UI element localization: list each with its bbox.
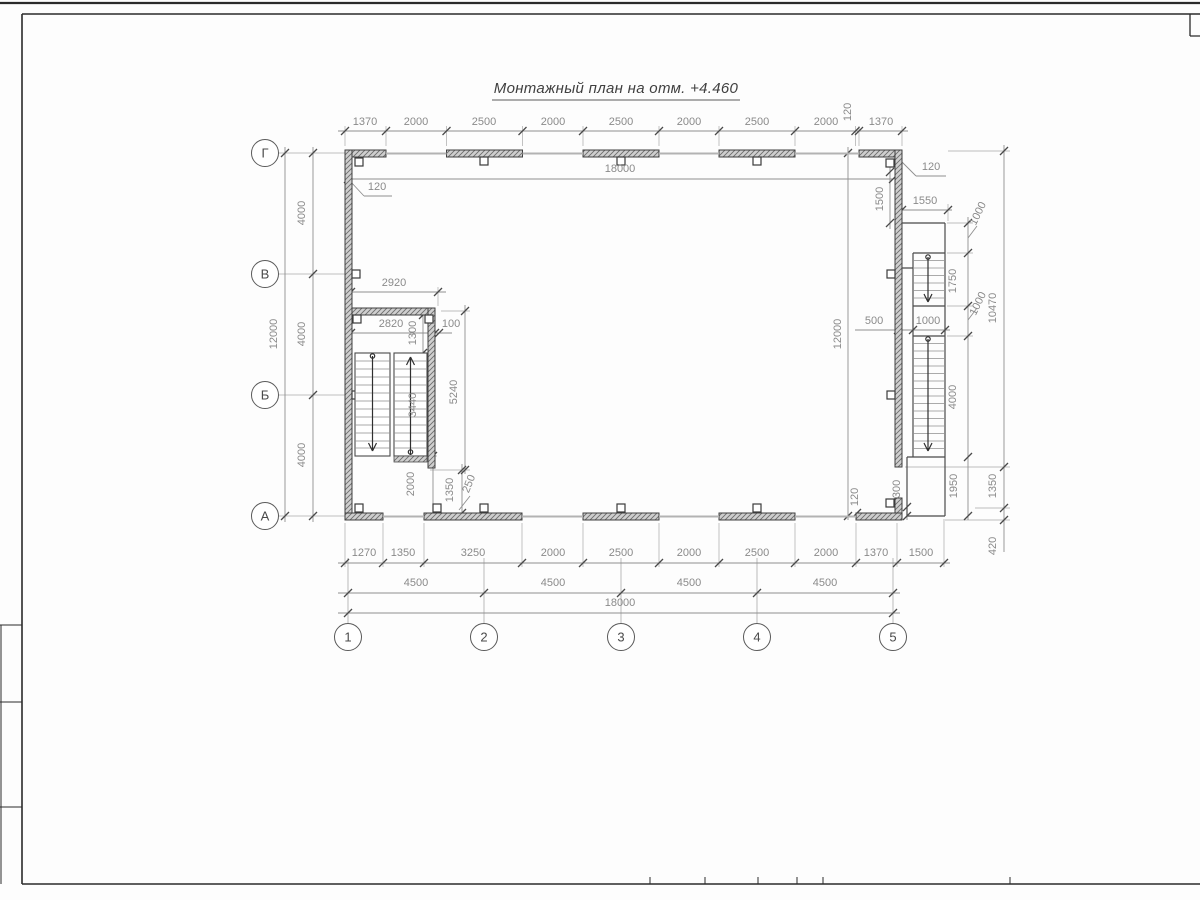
dimension-label: 4500 (404, 577, 428, 589)
dimension-label: 250 (460, 473, 478, 495)
dimension-label: 12000 (268, 319, 280, 350)
window-lines (383, 154, 859, 517)
dimension-label: 120 (368, 181, 386, 193)
axis-label: 2 (480, 630, 487, 645)
dimension-label: 4000 (947, 385, 959, 409)
dimension-label: 5240 (448, 380, 460, 404)
axis-label: А (261, 509, 270, 524)
dimension-label: 1270 (352, 547, 376, 559)
dimension-label: 10470 (987, 293, 999, 324)
dimension-label: 3250 (461, 547, 485, 559)
dimension-label: 2000 (541, 116, 565, 128)
dimension-label: 1350 (391, 547, 415, 559)
sheet-frame (0, 3, 1200, 884)
dimension-label: 4000 (296, 443, 308, 467)
axis-bubble: А (252, 503, 279, 530)
dimension-label: 2500 (609, 116, 633, 128)
dimension-label: 1370 (869, 116, 893, 128)
axis-label: 3 (617, 630, 624, 645)
floor-plan-canvas: Монтажный план на отм. +4.460 (0, 0, 1200, 900)
axis-bubble: Г (252, 140, 279, 167)
dimension-label: 500 (865, 315, 883, 327)
dimension-label: 1300 (407, 321, 419, 345)
dimension-label: 120 (842, 103, 854, 121)
dimension-label: 18000 (605, 163, 636, 175)
dimension-label: 2000 (677, 547, 701, 559)
dimension-label: 2000 (677, 116, 701, 128)
dimension-label: 1950 (948, 474, 960, 498)
dimension-label: 1350 (444, 478, 456, 502)
dimension-label: 1000 (968, 290, 990, 317)
axis-label: 1 (344, 630, 351, 645)
dimension-label: 12000 (832, 319, 844, 350)
dimension-label: 1370 (864, 547, 888, 559)
dimension-label: 300 (891, 480, 903, 498)
dimension-label: 1350 (987, 474, 999, 498)
dimension-label: 1370 (353, 116, 377, 128)
walls (345, 150, 902, 520)
dimension-label: 2500 (472, 116, 496, 128)
dimension-label: 2500 (745, 116, 769, 128)
drawing-title: Монтажный план на отм. +4.460 (494, 80, 739, 97)
dimension-label: 2000 (541, 547, 565, 559)
dimension-label: 1550 (913, 195, 937, 207)
axis-bubble: Б (252, 382, 279, 409)
dimension-label: 2000 (814, 116, 838, 128)
dimension-label: 2000 (404, 116, 428, 128)
dimension-label: 1750 (947, 269, 959, 293)
dimension-label: 1000 (968, 200, 990, 227)
dimension-label: 2000 (814, 547, 838, 559)
dimension-label: 4500 (677, 577, 701, 589)
dimension-label: 100 (442, 318, 460, 330)
axis-bubble: 1 (335, 624, 362, 651)
axis-label: 4 (753, 630, 760, 645)
dimension-label: 4000 (296, 201, 308, 225)
dimension-label: 1000 (916, 315, 940, 327)
axis-label: 5 (889, 630, 896, 645)
dimension-label: 420 (987, 537, 999, 555)
axis-bubble: 2 (471, 624, 498, 651)
axis-label: Б (261, 388, 270, 403)
right-staircase (902, 223, 945, 516)
dimension-label: 120 (922, 161, 940, 173)
axis-bubble: 4 (744, 624, 771, 651)
dimension-label: 4000 (296, 322, 308, 346)
dimension-label: 2500 (745, 547, 769, 559)
axis-label: В (261, 267, 270, 282)
dimension-label: 4500 (813, 577, 837, 589)
dimension-label: 1500 (909, 547, 933, 559)
stair-direction-arrows (924, 255, 932, 451)
axis-label: Г (261, 146, 268, 161)
axis-bubble: 5 (880, 624, 907, 651)
dimension-label: 2820 (379, 318, 403, 330)
dimension-label: 120 (849, 488, 861, 506)
dimension-label: 4500 (541, 577, 565, 589)
axis-bubble: 3 (608, 624, 635, 651)
dimension-label: 2000 (405, 472, 417, 496)
dimension-label: 1500 (874, 187, 886, 211)
dimension-label: 2920 (382, 277, 406, 289)
dimension-label: 18000 (605, 597, 636, 609)
axis-bubble: В (252, 261, 279, 288)
dimension-label: 3440 (407, 393, 419, 417)
drawing-sheet: Монтажный план на отм. +4.460 (0, 0, 1200, 900)
dimension-label: 2500 (609, 547, 633, 559)
